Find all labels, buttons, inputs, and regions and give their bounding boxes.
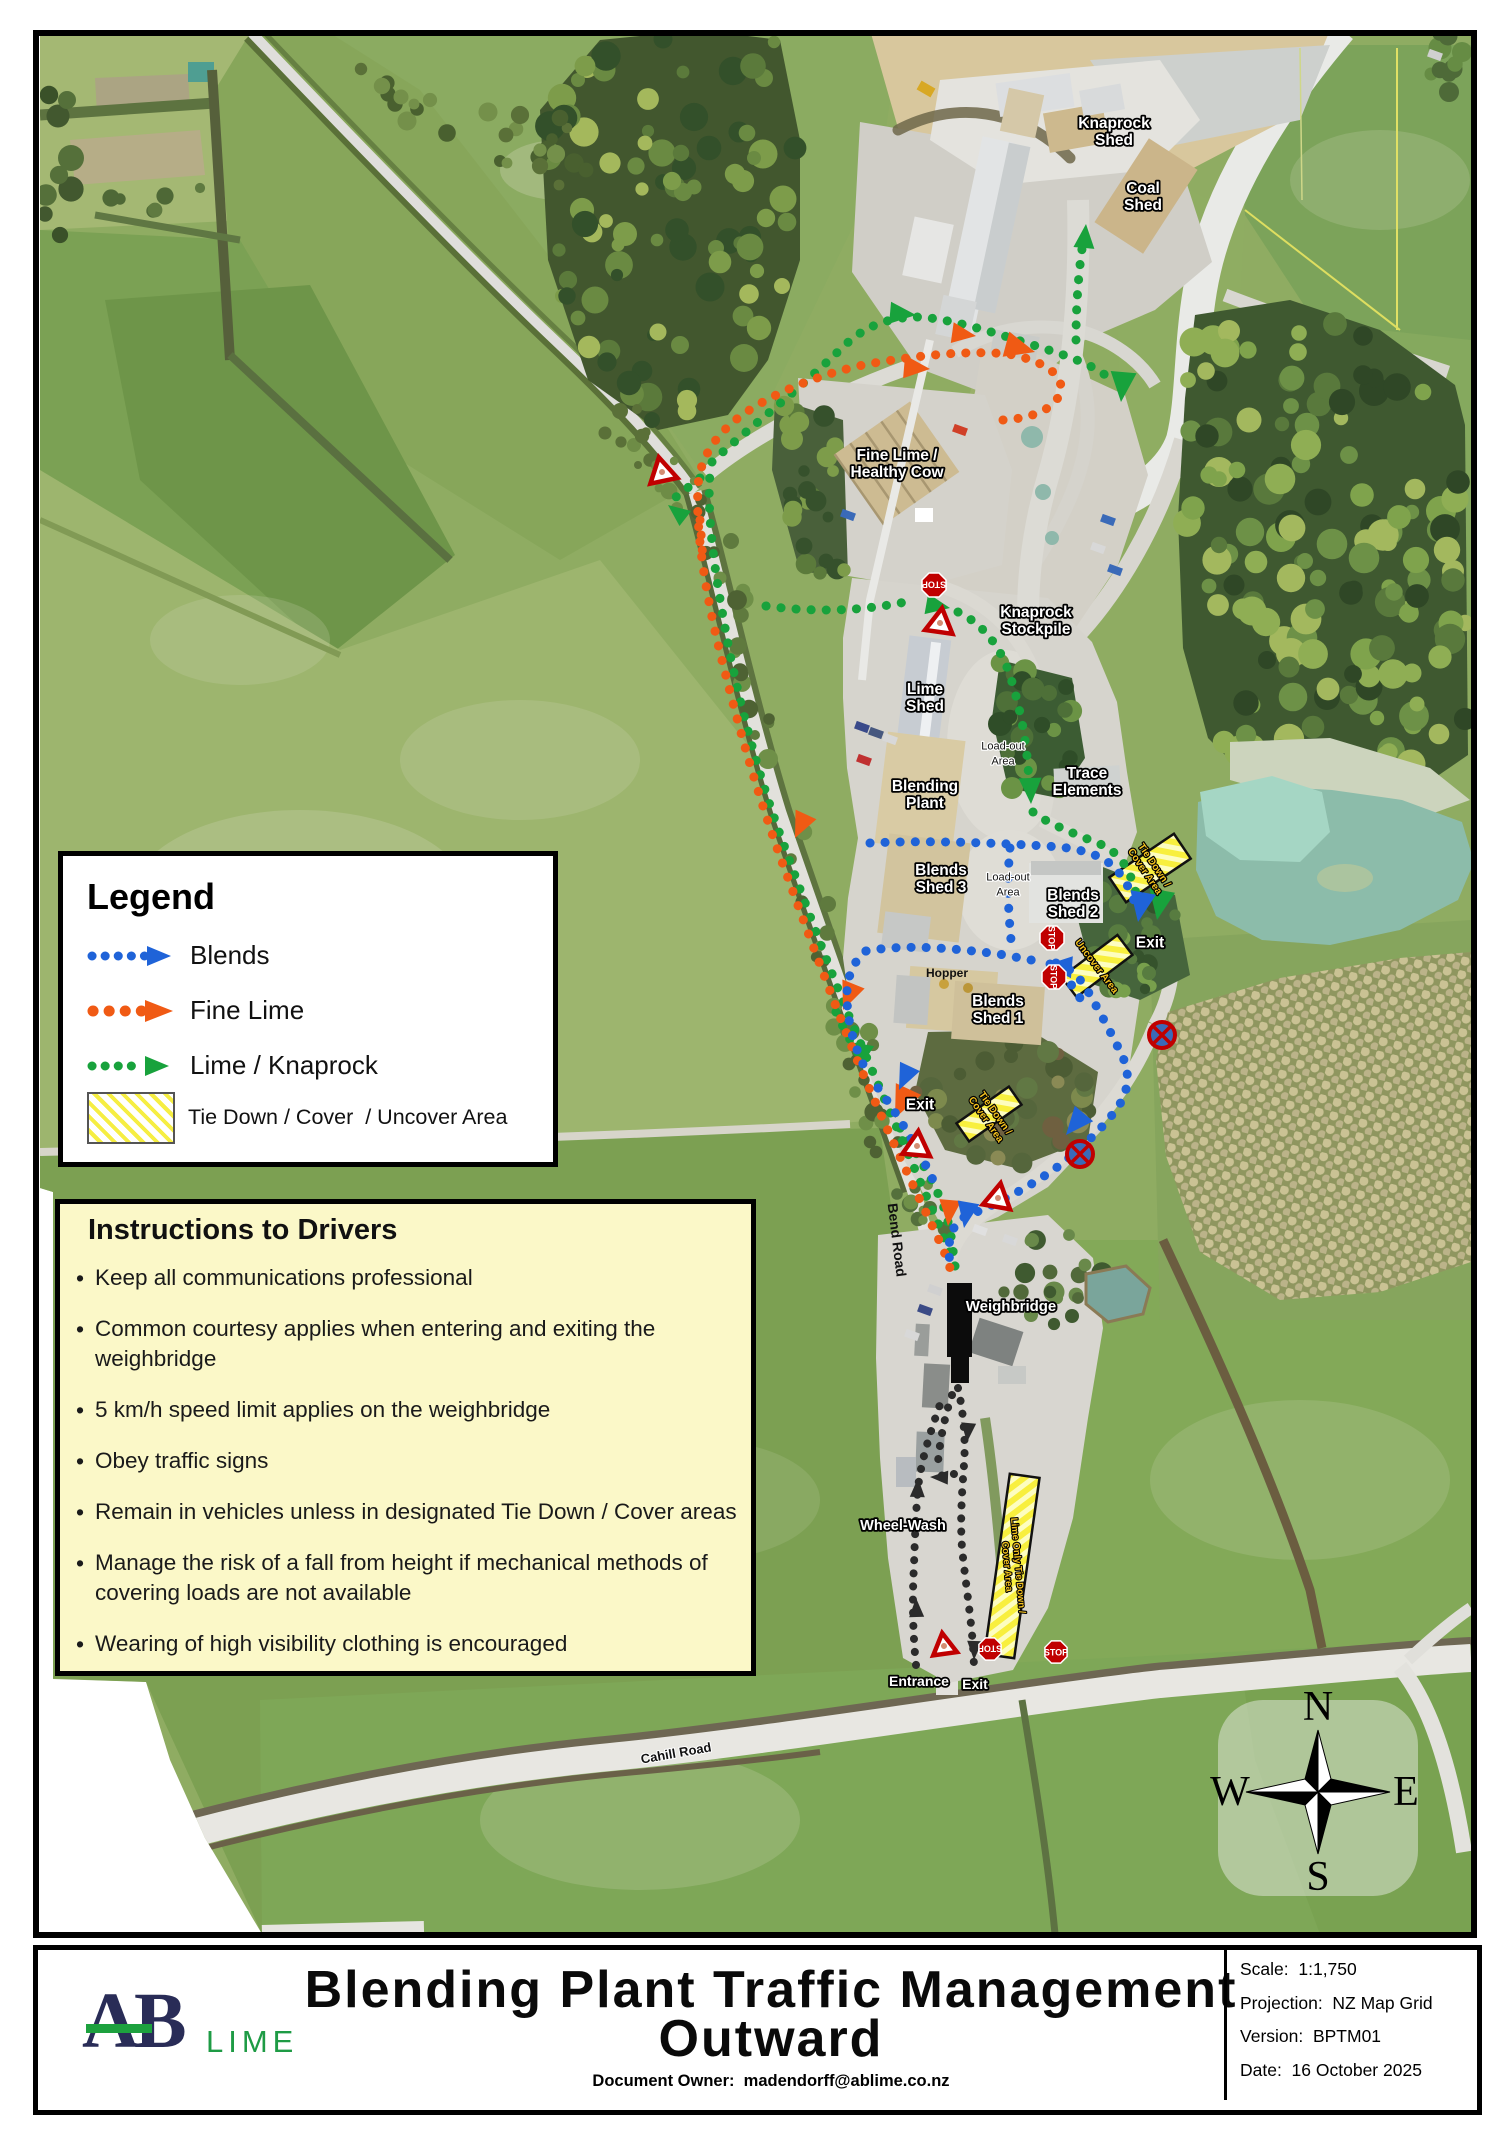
svg-text:Exit: Exit [962, 1676, 988, 1692]
svg-text:CoalShed: CoalShed [1124, 180, 1162, 214]
svg-text:Exit: Exit [906, 1096, 934, 1113]
svg-text:Exit: Exit [1136, 934, 1164, 951]
svg-text:KnaprockStockpile: KnaprockStockpile [1000, 604, 1072, 638]
svg-text:STOP: STOP [978, 1644, 1002, 1654]
svg-text:BlendsShed 1: BlendsShed 1 [972, 993, 1024, 1027]
svg-text:LimeShed: LimeShed [906, 681, 944, 715]
svg-text:Entrance: Entrance [889, 1673, 949, 1689]
svg-text:STOP: STOP [1047, 926, 1057, 950]
svg-text:E: E [1393, 1769, 1419, 1815]
svg-text:Fine Lime /Healthy Cow: Fine Lime /Healthy Cow [850, 447, 944, 481]
svg-text:BlendsShed 2: BlendsShed 2 [1047, 887, 1099, 921]
svg-text:Hopper: Hopper [926, 966, 968, 980]
svg-text:W: W [1210, 1769, 1250, 1815]
svg-text:STOP: STOP [1049, 965, 1059, 989]
svg-text:Wheel-Wash: Wheel-Wash [860, 1518, 946, 1534]
svg-text:STOP: STOP [1044, 1648, 1068, 1658]
svg-text:STOP: STOP [922, 580, 946, 590]
svg-text:Weighbridge: Weighbridge [966, 1298, 1057, 1315]
svg-text:S: S [1306, 1854, 1329, 1900]
svg-text:BlendsShed 3: BlendsShed 3 [915, 862, 967, 896]
svg-text:N: N [1303, 1684, 1333, 1730]
